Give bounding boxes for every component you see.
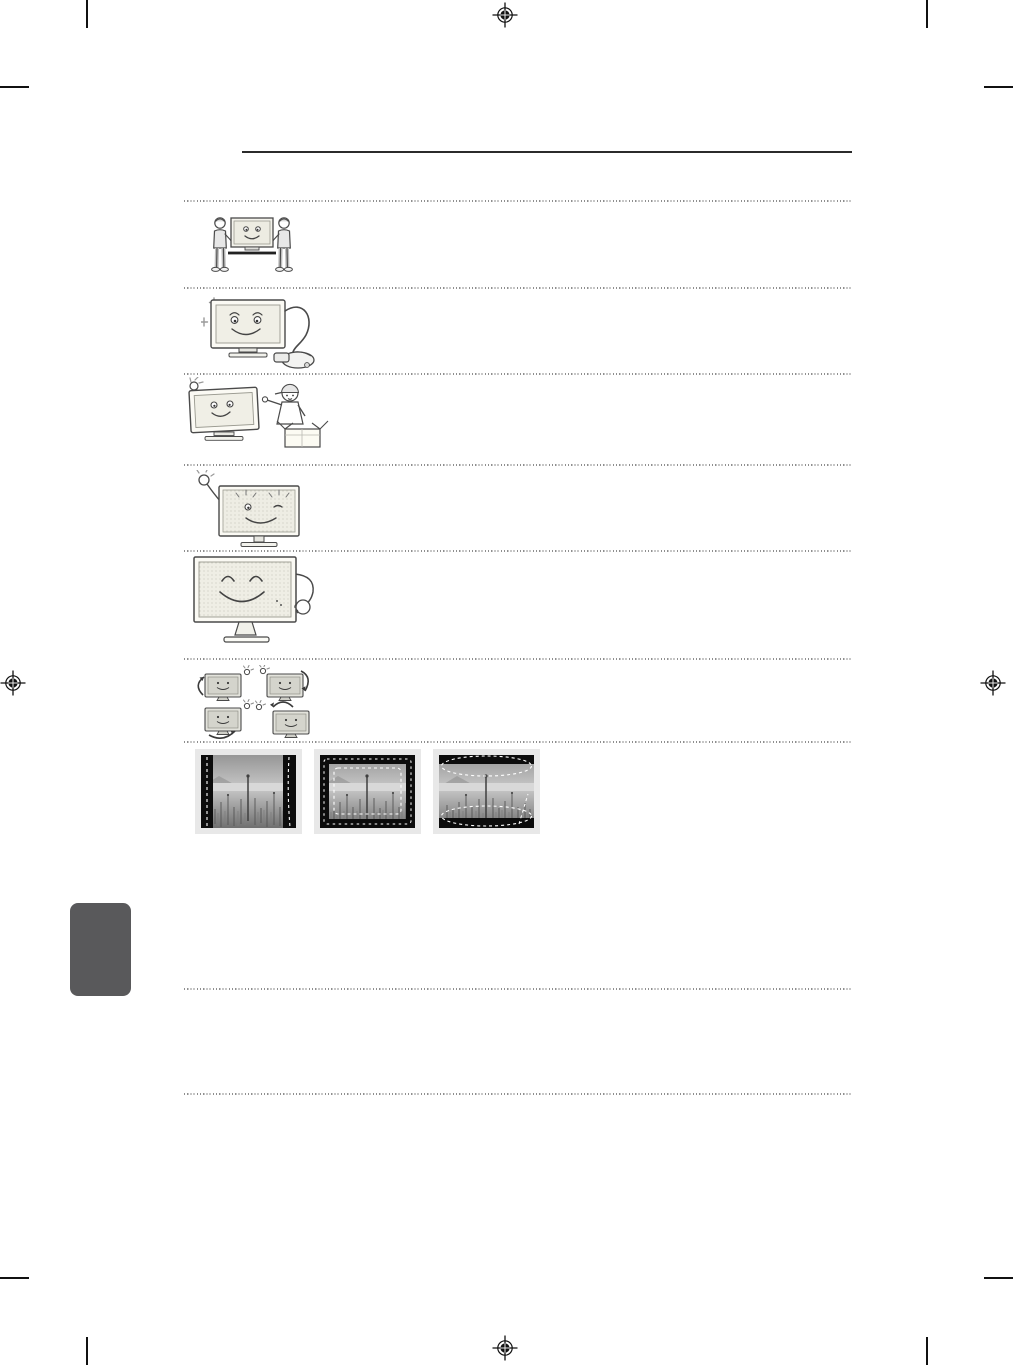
registration-target-icon	[980, 670, 1006, 696]
letterbox-topbottom-burn-in-photo	[433, 749, 540, 834]
section-title-rule	[242, 151, 852, 153]
page-edge-tab	[70, 903, 131, 996]
hand-waving-at-winking-tv-illustration	[194, 470, 306, 550]
dotted-separator	[184, 1093, 852, 1095]
dotted-separator	[184, 988, 852, 990]
four-tv-rotation-positions-illustration	[197, 665, 321, 739]
window-border-burn-in-photo	[314, 749, 421, 834]
crop-mark-bottom-right-v	[926, 1337, 928, 1365]
crop-mark-bottom-right-h	[984, 1277, 1013, 1279]
pillarbox-sidebars-burn-in-photo	[195, 749, 302, 834]
dotted-separator	[184, 550, 852, 552]
dotted-separator	[184, 200, 852, 202]
tv-with-vacuum-cleaner-illustration	[201, 293, 317, 371]
crop-mark-top-left-v	[86, 0, 88, 28]
screen-burn-in-example-photos	[195, 749, 541, 835]
dotted-separator	[184, 287, 852, 289]
registration-target-icon	[0, 670, 26, 696]
crop-mark-top-right-h	[984, 86, 1013, 88]
registration-target-icon	[492, 2, 518, 28]
crop-mark-bottom-left-v	[86, 1337, 88, 1365]
two-people-carrying-tv-illustration	[208, 212, 296, 278]
smiling-tv-with-hand-illustration	[191, 554, 319, 646]
dotted-separator	[184, 741, 852, 743]
crop-mark-top-right-v	[926, 0, 928, 28]
manual-page	[0, 0, 1013, 1365]
crop-mark-bottom-left-h	[0, 1277, 29, 1279]
dotted-separator	[184, 373, 852, 375]
tv-and-service-technician-with-box-illustration	[186, 377, 330, 459]
registration-target-icon	[492, 1335, 518, 1361]
dotted-separator	[184, 658, 852, 660]
dotted-separator	[184, 464, 852, 466]
crop-mark-top-left-h	[0, 86, 29, 88]
